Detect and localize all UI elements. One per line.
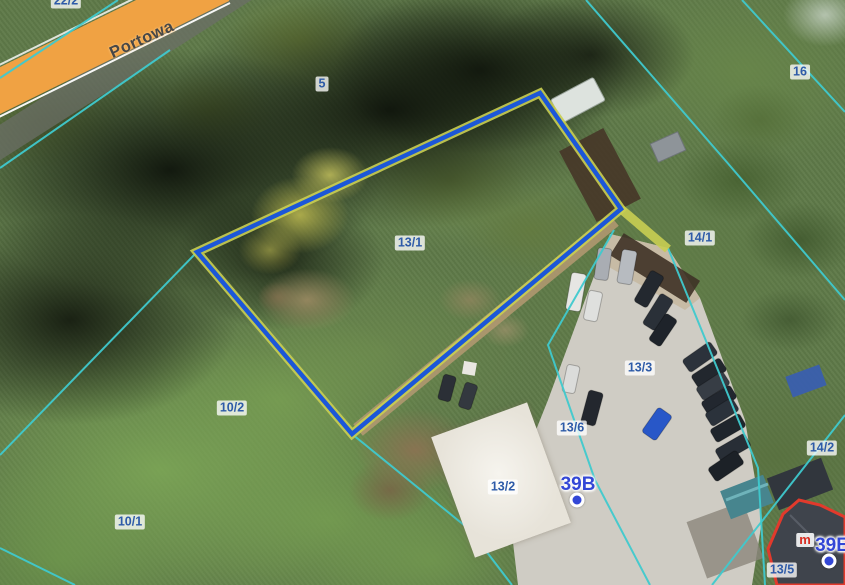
- building-function-label: m: [796, 533, 814, 547]
- parcel-label-22-2: 22/2: [51, 0, 81, 9]
- blue-tarp: [785, 365, 826, 398]
- parcel-label-13-2: 13/2: [488, 480, 518, 495]
- parcel-label-10-1: 10/1: [115, 515, 145, 530]
- parcel-label-13-6: 13/6: [557, 421, 587, 436]
- map-canvas[interactable]: Portowa m 22/2513/114/11613/310/210/113/…: [0, 0, 845, 585]
- parcel-label-13-3: 13/3: [625, 361, 655, 376]
- parcel-label-10-2: 10/2: [217, 401, 247, 416]
- parcel-label-5: 5: [316, 77, 329, 92]
- parcel-label-14-2: 14/2: [807, 441, 837, 456]
- map-features: [0, 0, 845, 585]
- address-marker-39E[interactable]: [822, 554, 837, 569]
- parcel-label-16: 16: [790, 65, 810, 80]
- small-hut: [462, 361, 477, 376]
- parcel-label-13-1: 13/1: [395, 236, 425, 251]
- parcel-label-13-5: 13/5: [767, 563, 797, 578]
- address-marker-39B[interactable]: [570, 493, 585, 508]
- parcel-label-14-1: 14/1: [685, 231, 715, 246]
